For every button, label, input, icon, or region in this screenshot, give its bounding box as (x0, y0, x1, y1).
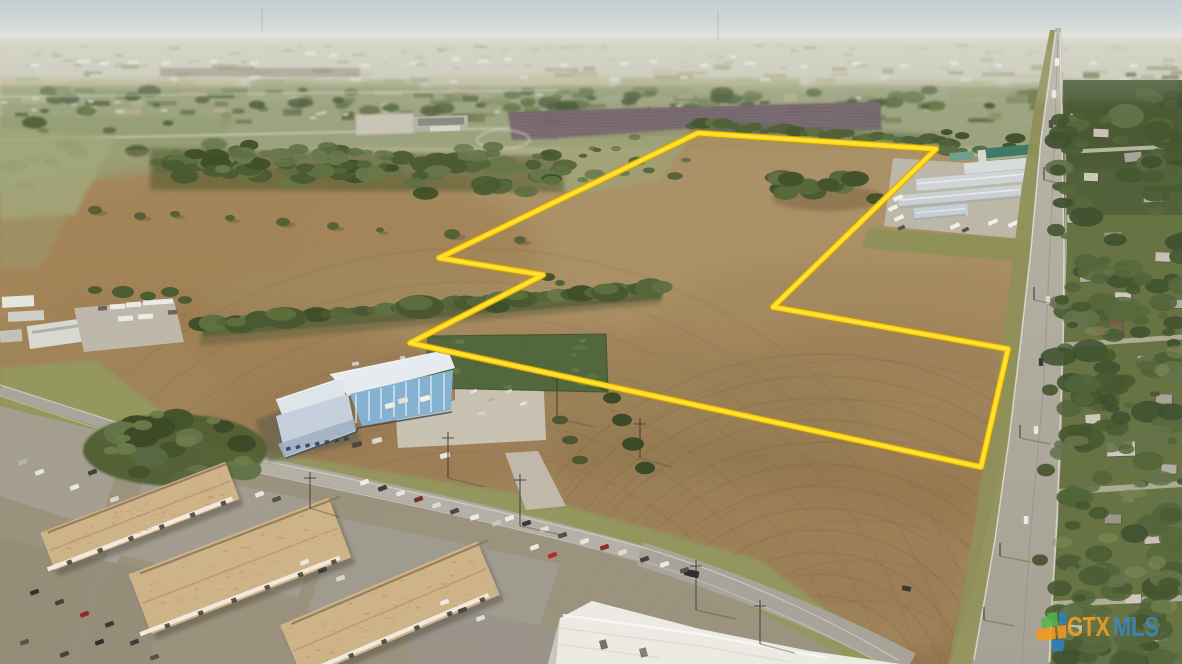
svg-text:MLS: MLS (1113, 611, 1159, 642)
svg-text:CTX: CTX (1067, 611, 1110, 642)
